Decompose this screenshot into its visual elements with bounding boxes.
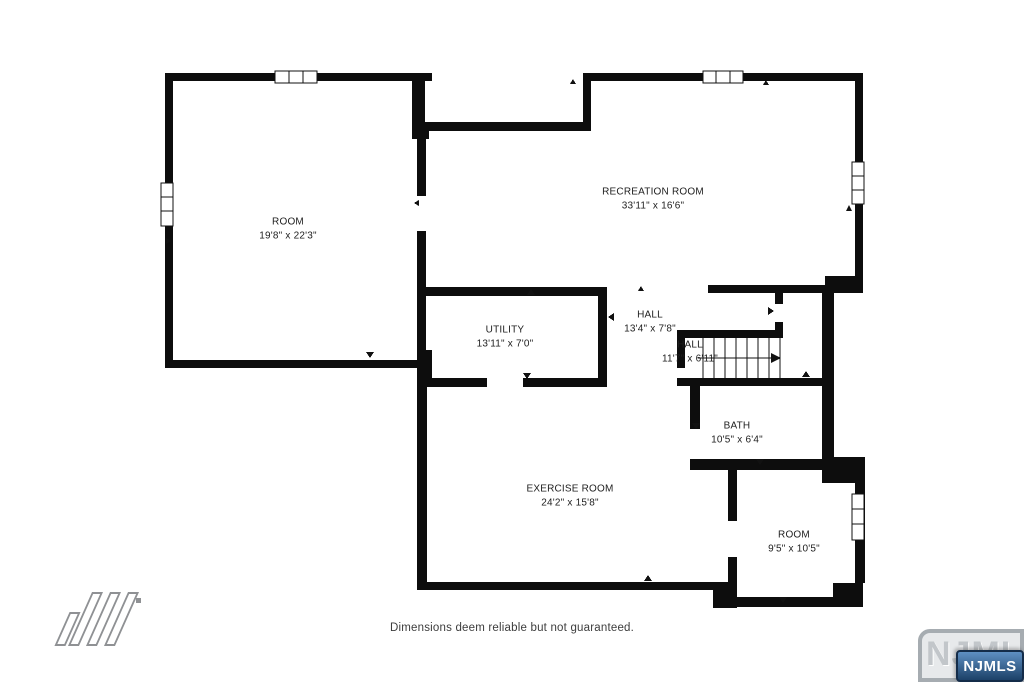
room-label-hall-upper: HALL 13'4" x 7'8": [624, 309, 676, 336]
room-name: ROOM: [778, 529, 810, 542]
njmls-logo-badge: NJMLS: [956, 650, 1024, 682]
room-name: HALL: [637, 309, 663, 322]
floorplan-maker-logo-icon: [52, 588, 144, 650]
room-dims: 19'8" x 22'3": [259, 230, 316, 243]
logo-dot: [136, 598, 141, 603]
disclaimer-text: Dimensions deem reliable but not guarant…: [0, 622, 1024, 634]
room-dims: 13'4" x 7'8": [624, 323, 676, 336]
room-label-utility: UTILITY 13'11" x 7'0": [477, 324, 534, 351]
room-dims: 11'7" x 6'11": [662, 353, 718, 366]
room-label-room-bottom-right: ROOM 9'5" x 10'5": [768, 529, 820, 556]
njmls-badge-text: NJMLS: [963, 658, 1016, 675]
room-label-bath: BATH 10'5" x 6'4": [711, 420, 763, 447]
room-dims: 13'11" x 7'0": [477, 338, 534, 351]
room-label-exercise-room: EXERCISE ROOM 24'2" x 15'8": [526, 483, 613, 510]
room-label-recreation-room: RECREATION ROOM 33'11" x 16'6": [602, 186, 704, 213]
room-label-room-left: ROOM 19'8" x 22'3": [259, 216, 316, 243]
room-name: RECREATION ROOM: [602, 186, 704, 199]
room-dims: 33'11" x 16'6": [622, 200, 684, 213]
room-name: EXERCISE ROOM: [526, 483, 613, 496]
room-dims: 10'5" x 6'4": [711, 434, 763, 447]
room-dims: 9'5" x 10'5": [768, 543, 820, 556]
room-name: HALL: [677, 339, 703, 352]
room-name: BATH: [724, 420, 751, 433]
room-label-hall-stairs: HALL 11'7" x 6'11": [662, 339, 718, 366]
floorplan-page: ROOM 19'8" x 22'3" RECREATION ROOM 33'11…: [0, 0, 1024, 682]
room-name: ROOM: [272, 216, 304, 229]
room-name: UTILITY: [486, 324, 525, 337]
room-dims: 24'2" x 15'8": [541, 497, 598, 510]
